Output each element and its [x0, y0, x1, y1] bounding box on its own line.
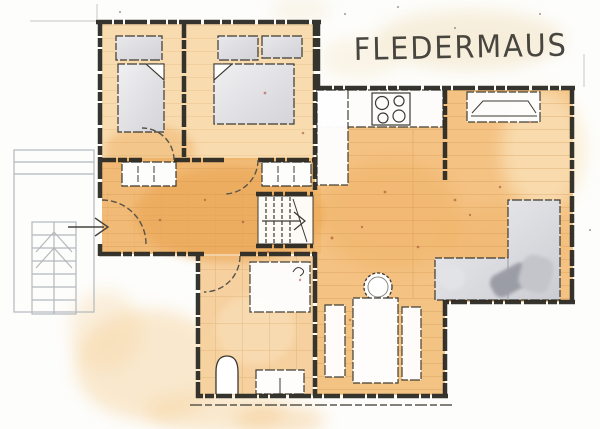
floor-plan-canvas: FLEDERMAUS [0, 0, 600, 429]
plan-title: FLEDERMAUS [353, 28, 568, 68]
shower [250, 262, 310, 312]
wardrobe-bedroom2-left [218, 36, 258, 60]
bench-left [325, 305, 345, 377]
hall-closet-right [262, 162, 311, 186]
interior-stairs [258, 196, 313, 244]
exterior-staircase [14, 150, 94, 314]
washbasin [256, 370, 304, 394]
single-bed [118, 64, 164, 132]
hall-closet-left [122, 162, 176, 186]
wardrobe-bedroom2-right [262, 36, 302, 58]
bench-right [402, 307, 421, 380]
wardrobe-bedroom1 [116, 36, 162, 60]
dining-table [353, 298, 398, 383]
round-stove [364, 273, 392, 301]
floor-plan-drawing: FLEDERMAUS [0, 0, 600, 429]
sideboard [467, 92, 540, 122]
toilet [216, 356, 238, 394]
double-bed [214, 64, 294, 124]
